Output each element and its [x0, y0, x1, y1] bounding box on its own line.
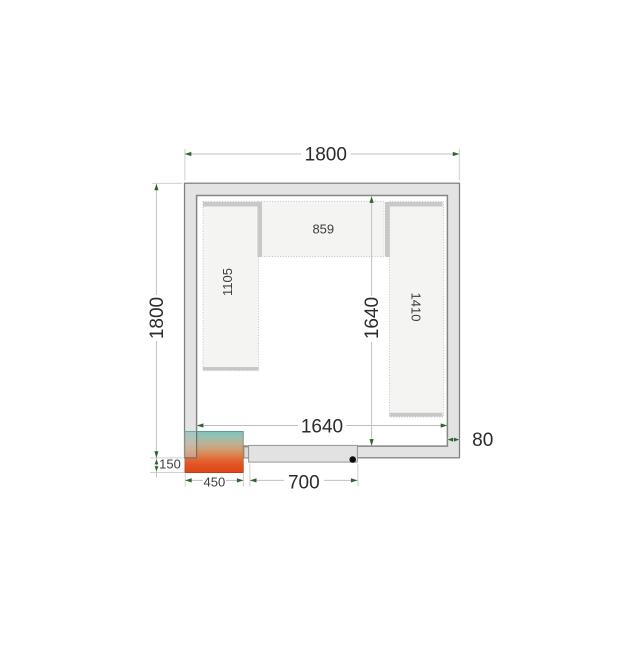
svg-text:859: 859 [312, 222, 334, 237]
svg-text:1800: 1800 [305, 145, 347, 166]
svg-text:700: 700 [288, 473, 320, 494]
svg-text:1640: 1640 [362, 297, 383, 339]
svg-text:1640: 1640 [301, 417, 343, 438]
svg-text:1105: 1105 [220, 268, 235, 296]
svg-text:80: 80 [472, 430, 493, 451]
svg-text:1410: 1410 [409, 293, 424, 322]
svg-text:1800: 1800 [147, 297, 168, 339]
svg-text:450: 450 [204, 474, 226, 489]
svg-text:150: 150 [159, 457, 181, 472]
